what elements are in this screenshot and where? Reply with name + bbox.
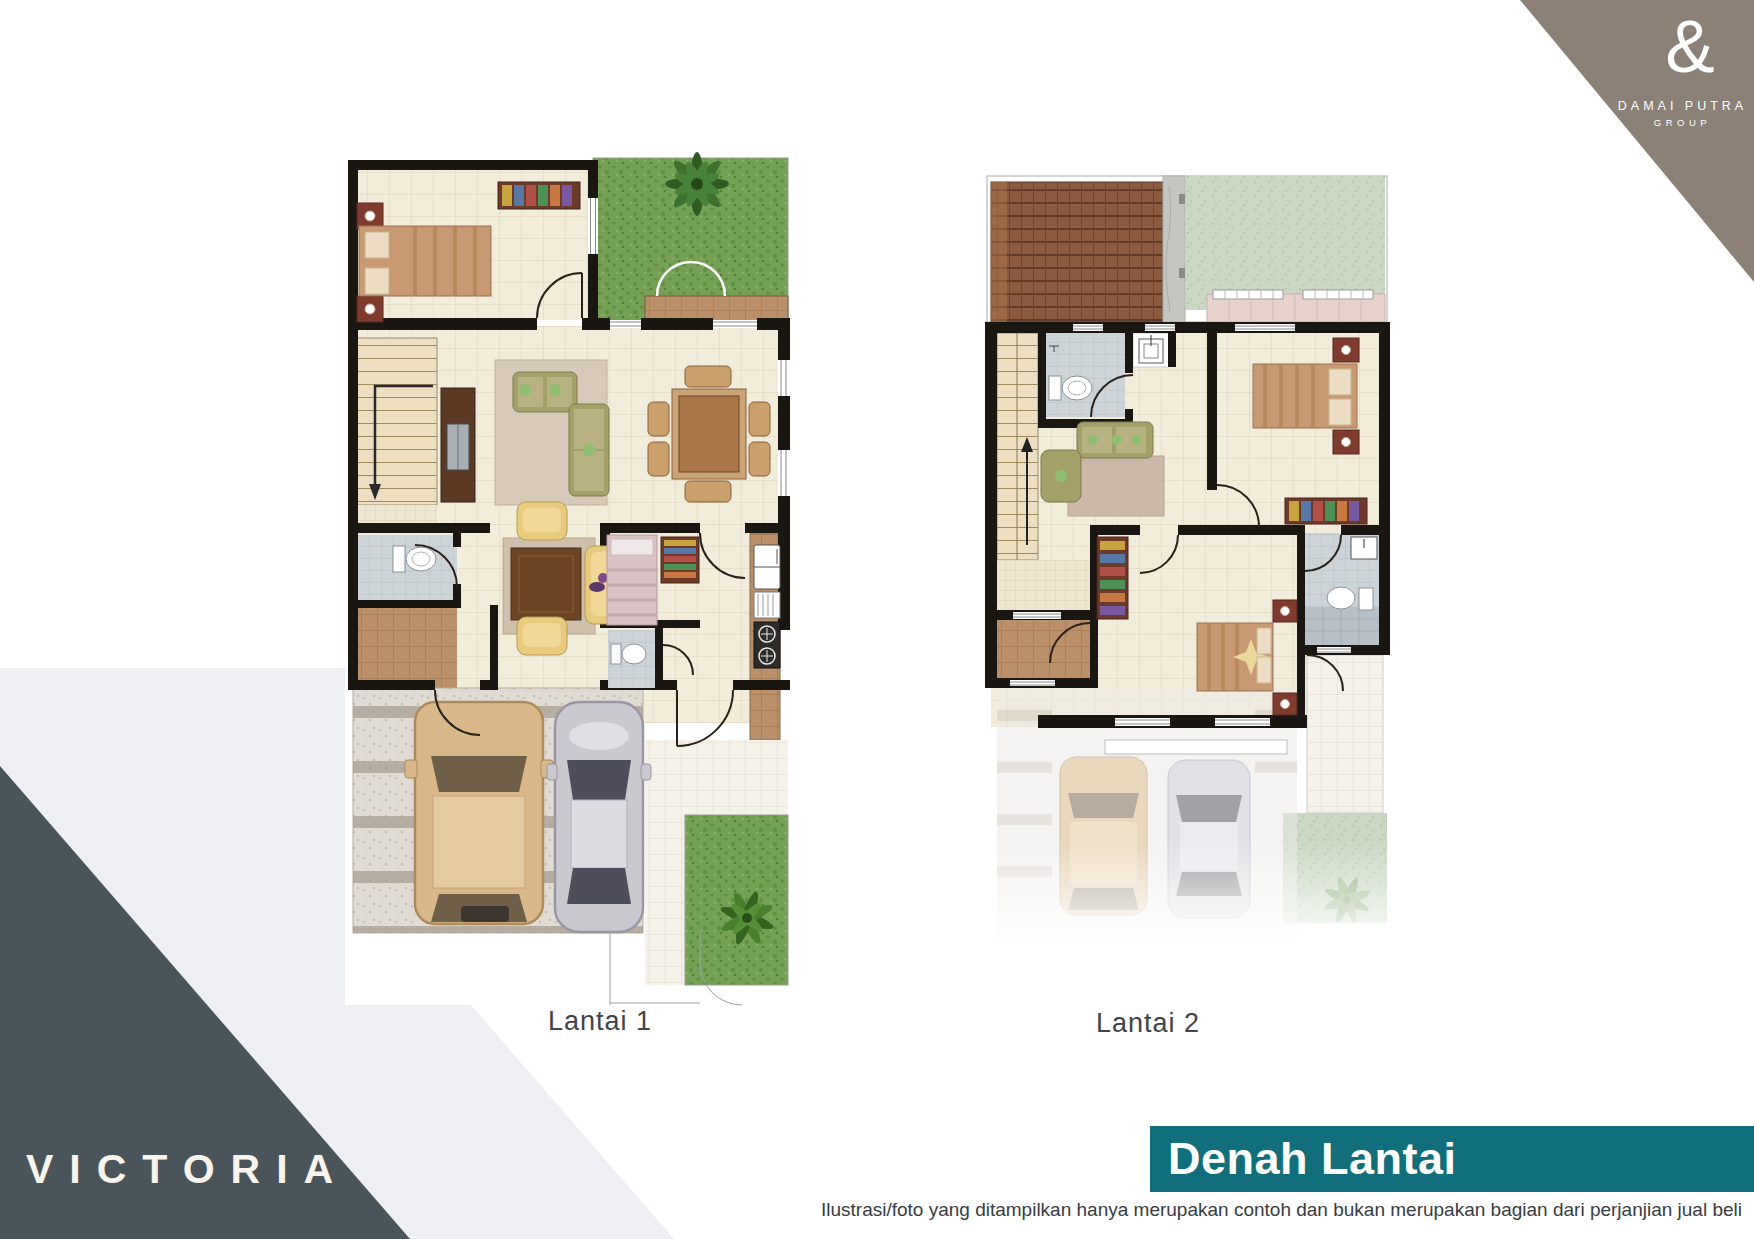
toilet-icon [622, 644, 646, 664]
plan1-label: Lantai 1 [548, 1006, 652, 1037]
brown-room-tiles [997, 620, 1090, 678]
porch-tiles [645, 740, 788, 815]
stove-icon [754, 622, 780, 668]
toilet-icon [393, 546, 436, 572]
bed-icon [1253, 364, 1357, 428]
toilet-icon [1327, 587, 1355, 609]
roof-canopy [991, 182, 1163, 322]
title-banner: Denah Lantai [1150, 1126, 1754, 1192]
floor-plan-lantai-2 [985, 150, 1390, 950]
walkway-tiles [645, 815, 685, 985]
wash-basin-icon [1133, 333, 1169, 367]
brand-name: DAMAI PUTRA [1615, 99, 1750, 113]
fade-overlay [985, 840, 1390, 950]
kitchen-appliances [754, 545, 780, 668]
background-shapes [0, 0, 1754, 1239]
wardrobe-icon [498, 182, 580, 209]
disclaimer-text: Ilustrasi/foto yang ditampilkan hanya me… [821, 1199, 1742, 1221]
bathroom-floor [355, 535, 457, 600]
brand-group: GROUP [1615, 117, 1750, 128]
terrace-tiles [1307, 655, 1383, 813]
wardrobe-icon [661, 537, 699, 583]
wardrobe-icon [1285, 498, 1367, 524]
porch-step-outline [1105, 740, 1287, 754]
tv-cabinet-icon [441, 388, 475, 502]
floor-plan-lantai-1 [345, 150, 790, 1040]
palm-tree-icon [665, 152, 729, 216]
bed-icon [359, 226, 491, 296]
stairs-icon [353, 338, 437, 533]
project-name: VICTORIA [26, 1146, 349, 1193]
sedan-car-icon [547, 702, 651, 932]
bed-icon [1197, 623, 1273, 691]
side-wall-strip [1163, 176, 1186, 322]
garden [593, 152, 788, 322]
balcony [1207, 290, 1385, 322]
brochure-page: Lantai 1 Lantai 2 & DAMAI PUTRA GROUP VI… [0, 0, 1754, 1239]
plan2-label: Lantai 2 [1096, 1008, 1200, 1039]
living-sofa-icon [495, 360, 609, 505]
wardrobe-icon [1097, 537, 1128, 619]
banner-title: Denah Lantai [1150, 1126, 1754, 1192]
ampersand-logo-icon: & [1642, 4, 1738, 89]
small-bathroom [608, 630, 655, 688]
